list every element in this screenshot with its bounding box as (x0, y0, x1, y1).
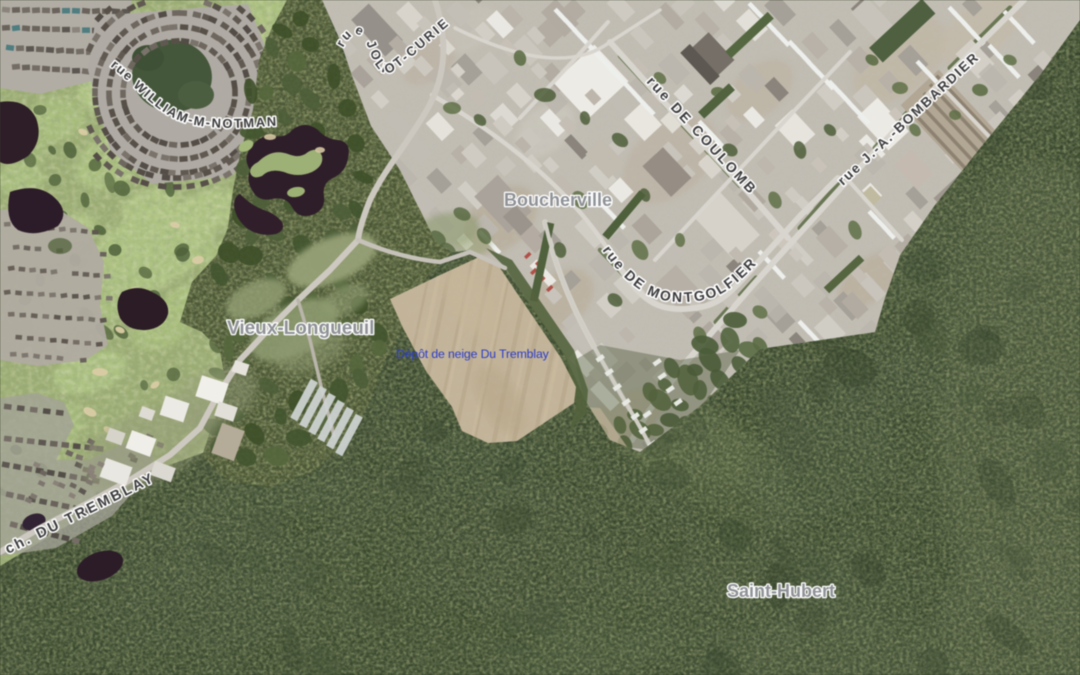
svg-text:Saint-Hubert: Saint-Hubert (727, 581, 835, 601)
svg-text:Vieux-Longueuil: Vieux-Longueuil (227, 318, 374, 339)
svg-text:Dépôt de neige Du Tremblay: Dépôt de neige Du Tremblay (396, 347, 550, 361)
svg-text:Boucherville: Boucherville (504, 190, 612, 210)
